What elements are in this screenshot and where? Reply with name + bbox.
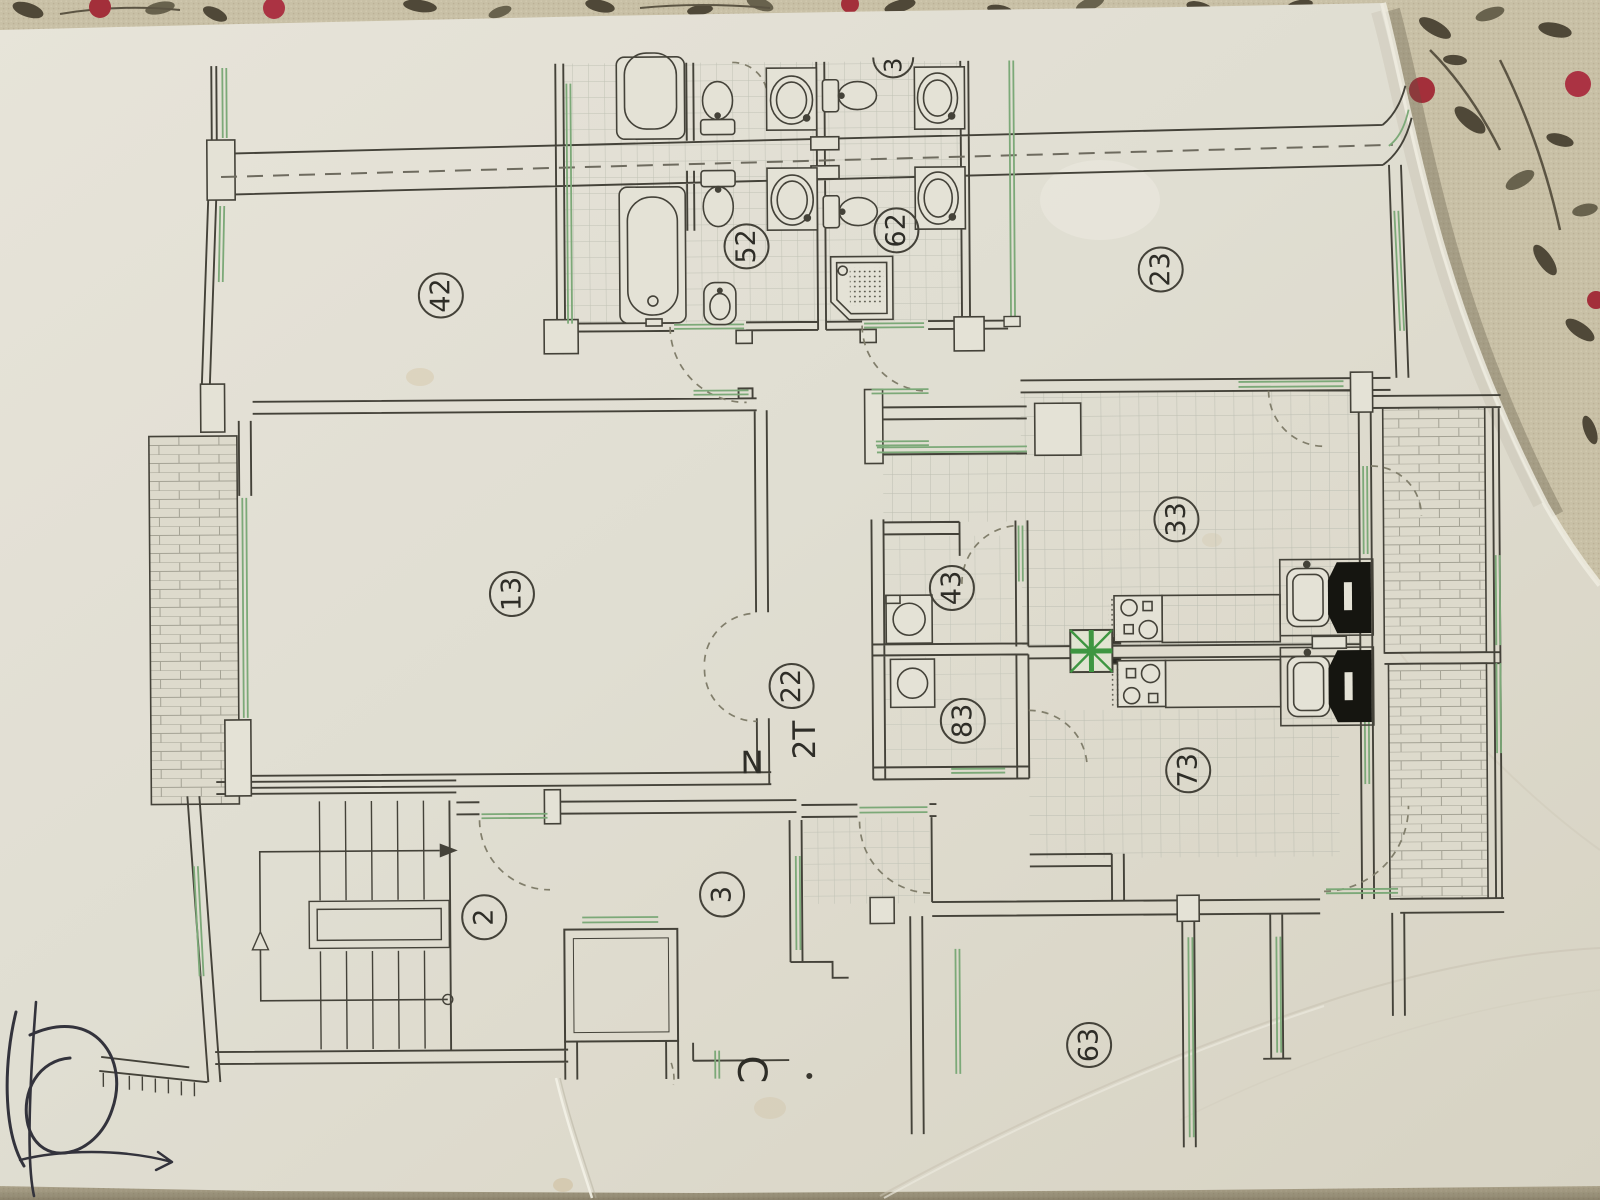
photo-of-floorplan: 4252622313334322837323632TNC3 — [0, 0, 1600, 1200]
photo-vignette — [0, 0, 1600, 1200]
floorplan-photo-svg: 4252622313334322837323632TNC3 — [0, 0, 1600, 1200]
